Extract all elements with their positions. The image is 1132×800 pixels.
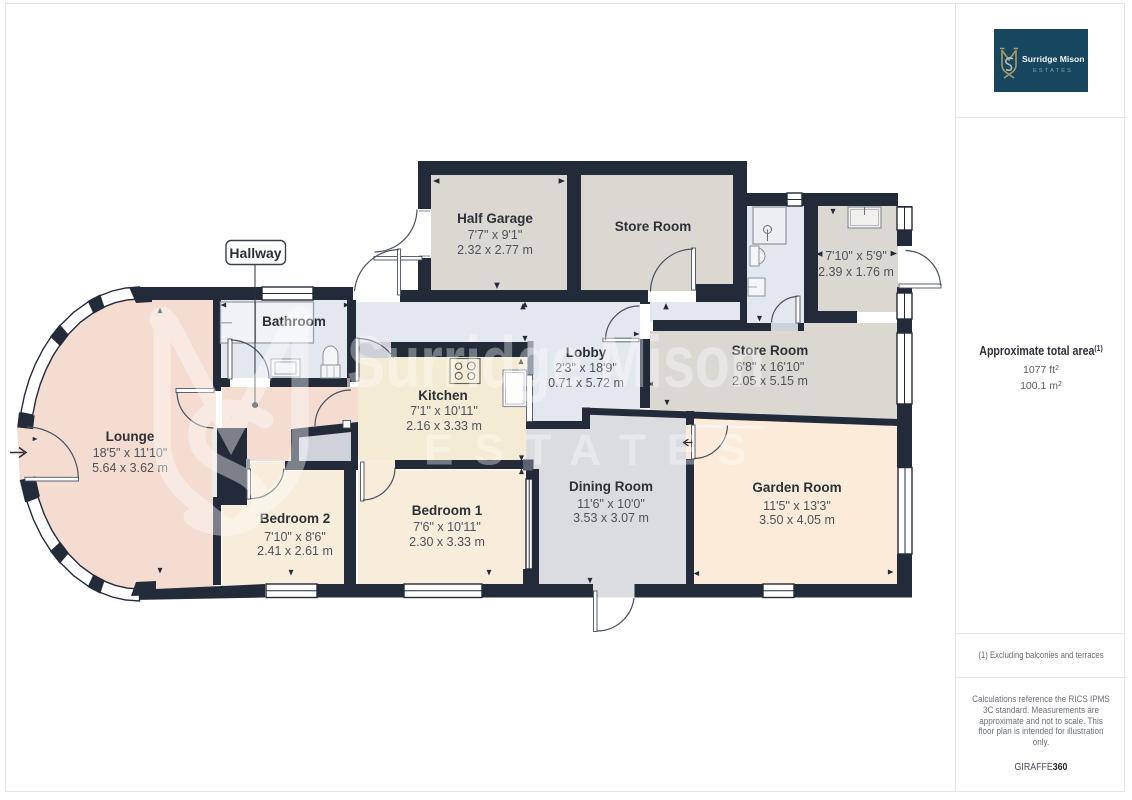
- svg-text:ESTATES: ESTATES: [1033, 68, 1073, 74]
- svg-text:Surridge Mison: Surridge Mison: [1022, 54, 1085, 64]
